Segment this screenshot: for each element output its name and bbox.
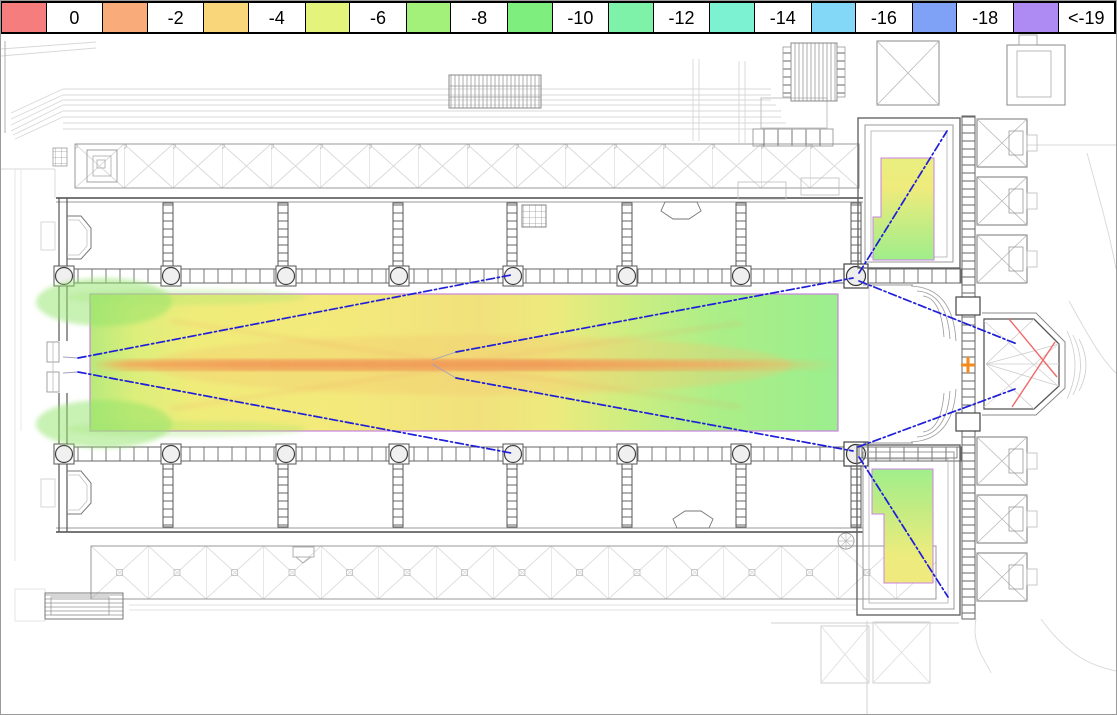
legend-swatch: [102, 2, 148, 33]
legend-label: -16: [855, 2, 913, 33]
spl-heatmap-chapel-ne: [873, 158, 934, 260]
legend-label: -2: [147, 2, 205, 33]
legend-swatch: [1013, 2, 1059, 33]
spl-heatmap-nave: [36, 278, 838, 448]
crossing-piers: [844, 264, 868, 466]
legend-swatch: [709, 2, 755, 33]
legend-label: -14: [754, 2, 812, 33]
legend-label: -8: [450, 2, 508, 33]
legend-label: <-19: [1058, 2, 1116, 33]
north-portico: [53, 75, 859, 188]
legend-swatch: [1, 2, 47, 33]
legend-swatch: [912, 2, 958, 33]
legend-label: -18: [956, 2, 1014, 33]
legend-swatch: [406, 2, 452, 33]
south-portico: [45, 533, 936, 619]
legend-label: -12: [653, 2, 711, 33]
acoustic-coverage-map: 0-2-4-6-8-10-12-14-16-18<-19: [0, 0, 1117, 715]
floor-plan-svg: [1, 1, 1116, 714]
color-scale-legend: 0-2-4-6-8-10-12-14-16-18<-19: [1, 1, 1116, 34]
legend-swatch: [608, 2, 654, 33]
legend-swatch: [811, 2, 857, 33]
legend-swatch: [507, 2, 553, 33]
legend-label: -4: [248, 2, 306, 33]
legend-label: 0: [46, 2, 104, 33]
legend-label: -6: [349, 2, 407, 33]
legend-swatch: [305, 2, 351, 33]
apse: [982, 313, 1086, 415]
legend-label: -10: [552, 2, 610, 33]
legend-swatch: [203, 2, 249, 33]
